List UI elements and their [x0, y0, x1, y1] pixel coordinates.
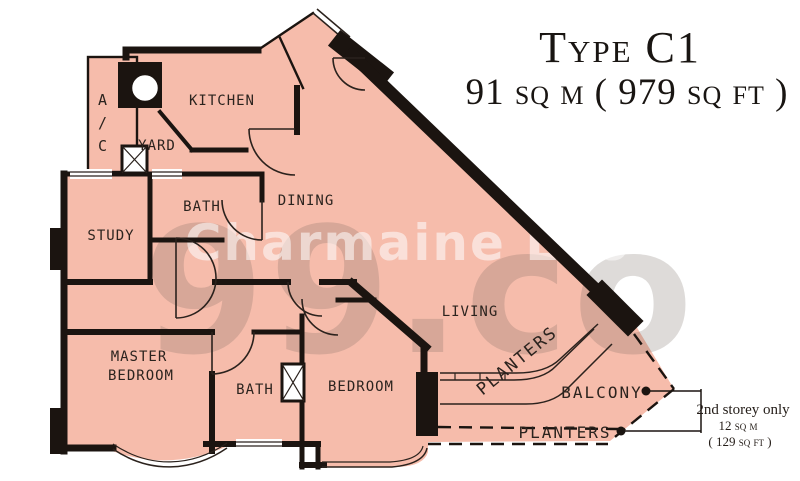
title-block: Type C1 91 sq m ( 979 sq ft )	[466, 23, 789, 113]
room-label-dining: DINING	[278, 193, 335, 209]
wall-block-bedroom-corner	[416, 372, 438, 436]
room-label-master-2: BEDROOM	[108, 368, 174, 384]
room-label-ac-2: /	[98, 114, 108, 132]
callout-text-line2: 12 sq m	[718, 418, 757, 433]
callout-text-line3: ( 129 sq ft )	[708, 434, 771, 449]
room-label-living: LIVING	[442, 304, 499, 320]
washer-drum-icon	[132, 75, 159, 102]
room-label-kitchen: KITCHEN	[189, 93, 255, 109]
callout-dot-planters	[617, 427, 626, 436]
callout-text-line1: 2nd storey only	[696, 402, 790, 418]
floor-plan-canvas: 99.co Charmaine Lao	[0, 0, 800, 481]
room-label-yard: YARD	[138, 138, 176, 154]
window-gap-study	[70, 169, 112, 179]
callout-dot-balcony	[642, 387, 651, 396]
room-label-planters-lower: PLANTERS	[518, 423, 611, 442]
plan-title: Type C1	[539, 23, 701, 72]
floor-plan-page: 99.co Charmaine Lao	[0, 0, 800, 481]
room-label-bedroom: BEDROOM	[328, 379, 394, 395]
room-label-bath-upper: BATH	[183, 199, 221, 215]
room-label-master-1: MASTER	[111, 349, 168, 365]
room-label-bath-lower: BATH	[236, 382, 274, 398]
room-label-study: STUDY	[87, 228, 134, 244]
window-gap-bath-upper	[152, 169, 182, 179]
room-label-ac-1: A	[98, 91, 108, 109]
room-label-balcony: BALCONY	[561, 383, 642, 402]
window-gap-bath-lower	[236, 439, 282, 449]
plan-area: 91 sq m ( 979 sq ft )	[466, 72, 789, 113]
room-label-ac-3: C	[98, 137, 108, 155]
wall-pillar-upper	[50, 228, 65, 270]
